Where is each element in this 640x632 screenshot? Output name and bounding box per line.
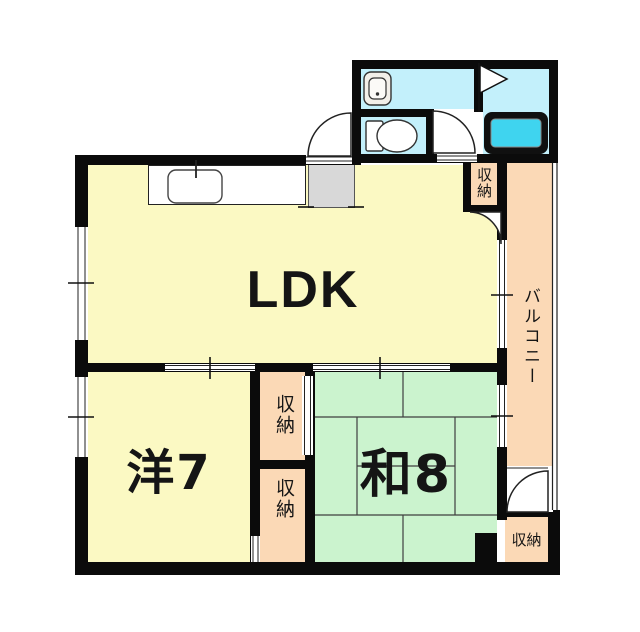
label-storage-lower: 収納 bbox=[271, 478, 298, 520]
kitchen-sink-icon bbox=[168, 160, 222, 203]
entrance-door-swing bbox=[308, 113, 351, 156]
toilet-icon bbox=[366, 120, 417, 152]
label-western-room: 洋7 bbox=[88, 433, 250, 503]
label-storage-bottom-right: 収納 bbox=[505, 529, 548, 550]
label-balcony: バルコニー bbox=[518, 287, 543, 387]
label-ldk: LDK bbox=[98, 260, 508, 320]
label-storage-upper: 収納 bbox=[271, 394, 298, 436]
balcony-door-swing bbox=[507, 471, 548, 512]
label-storage-top-right: 収納 bbox=[474, 167, 495, 199]
storage-door-swing bbox=[470, 212, 501, 244]
label-japanese-room: 和8 bbox=[315, 432, 497, 507]
floor-plan: LDK 洋7 和8 バルコニー 収納 収納 収納 収納 bbox=[0, 0, 640, 632]
hallway-door-swing bbox=[433, 111, 475, 153]
bath-door-flag-icon bbox=[479, 63, 507, 112]
balcony-railing bbox=[553, 163, 558, 510]
washbasin-icon bbox=[364, 72, 391, 105]
bathtub-icon bbox=[484, 112, 548, 154]
